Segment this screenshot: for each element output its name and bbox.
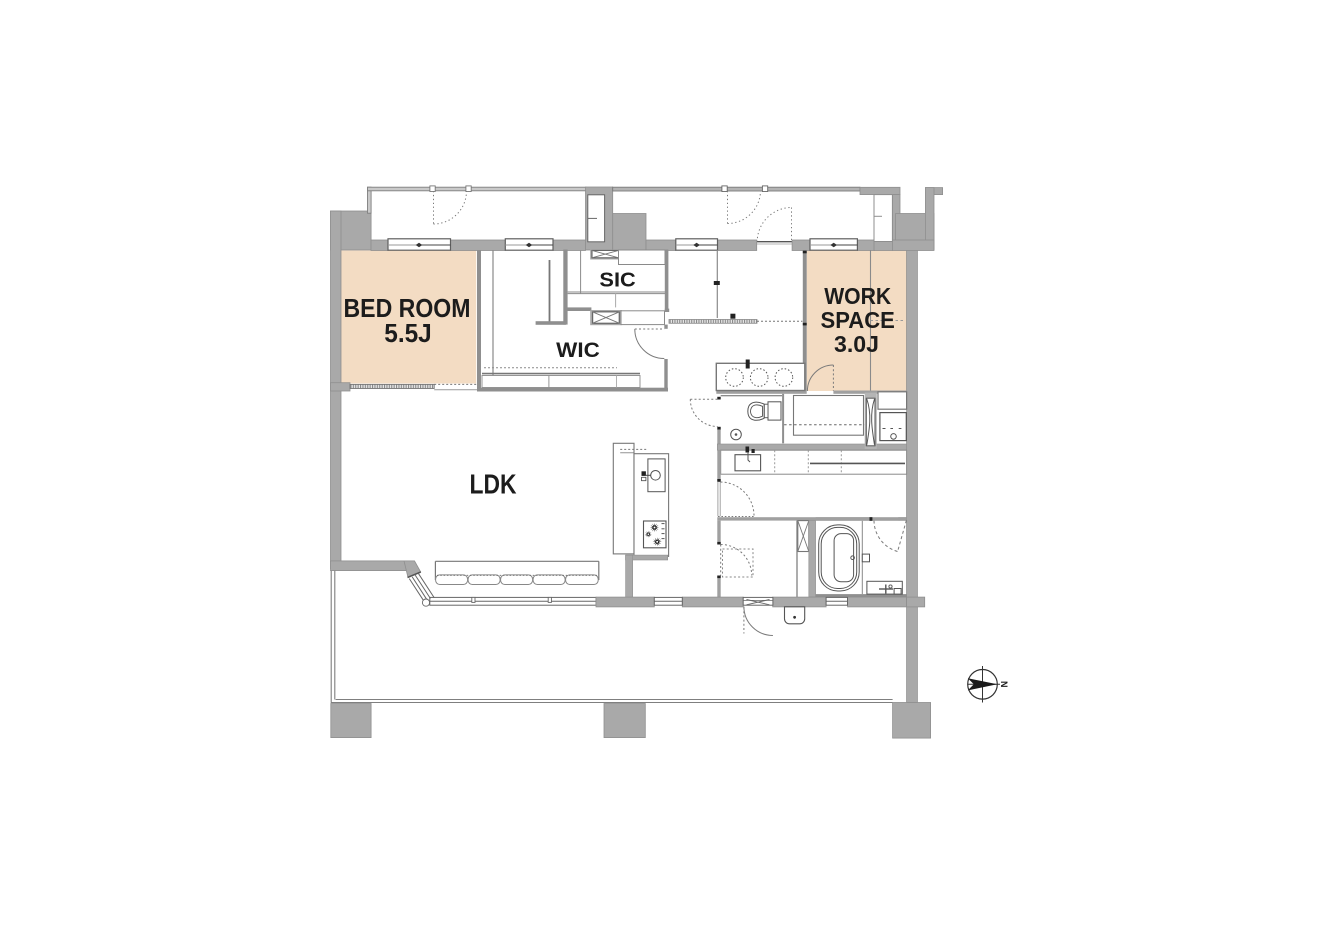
svg-text:SIC: SIC [599, 269, 635, 292]
svg-text:LDK: LDK [470, 469, 517, 500]
svg-text:SPACE: SPACE [821, 307, 895, 333]
svg-text:3.0J: 3.0J [834, 331, 879, 357]
svg-text:N: N [999, 681, 1009, 688]
svg-text:WORK: WORK [824, 283, 891, 309]
svg-text:WIC: WIC [556, 338, 600, 362]
svg-text:5.5J: 5.5J [384, 318, 432, 348]
